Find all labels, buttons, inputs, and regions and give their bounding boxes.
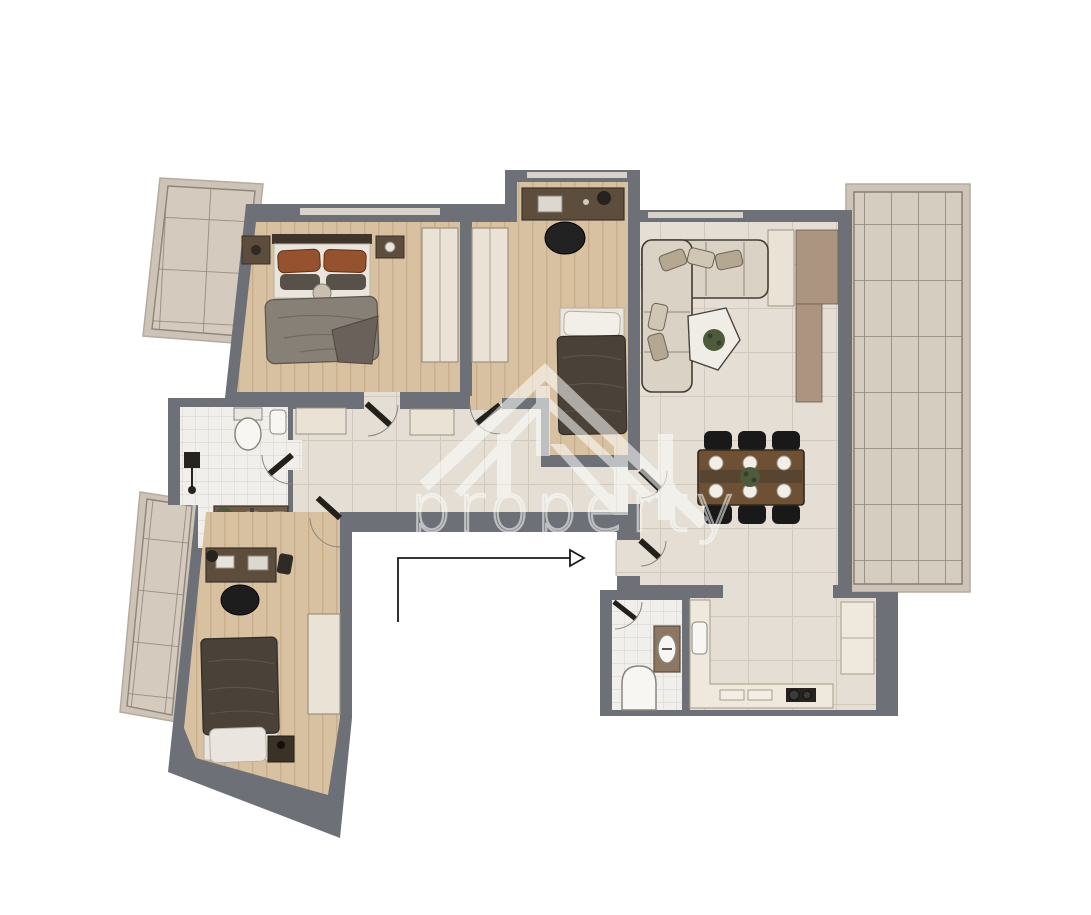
toilet: [622, 666, 656, 710]
dining-chair: [772, 504, 800, 524]
dining-chair: [738, 431, 766, 451]
office-chair: [221, 585, 259, 615]
wardrobe: [308, 614, 340, 714]
floor-plan-stage: property: [0, 0, 1091, 915]
terrace-tiles: [854, 192, 962, 584]
kitchen: [690, 585, 876, 710]
kitchen-sink: [692, 622, 707, 654]
desk-lamp: [206, 550, 218, 562]
media-wall-lower: [796, 304, 822, 402]
arrow-head: [570, 550, 584, 566]
sideboard: [296, 408, 346, 434]
double-bed: [265, 234, 379, 364]
sideboard: [410, 409, 454, 435]
dining-chair: [704, 431, 732, 451]
bathroom-2: [612, 600, 682, 710]
toilet: [234, 408, 262, 450]
cutting-board: [720, 690, 744, 700]
entrance-arrow: [398, 550, 584, 622]
pillow-gray-right: [326, 274, 366, 290]
desk: [206, 548, 276, 582]
room-bedroom-3: [184, 512, 340, 795]
desk-lamp: [597, 191, 611, 205]
dining-chair: [738, 504, 766, 524]
papers: [216, 556, 234, 568]
watermark-text: property: [410, 470, 741, 547]
laptop: [538, 196, 562, 212]
blanket: [201, 637, 279, 735]
room-master-bedroom: [237, 208, 460, 392]
pillow: [564, 311, 621, 337]
window-strip: [527, 172, 627, 178]
sink-console: [654, 626, 680, 672]
dining-chair: [772, 431, 800, 451]
centerpiece-plant: [740, 467, 760, 487]
pillow-gray-left: [280, 274, 320, 290]
cooktop: [786, 688, 816, 702]
single-bed: [201, 637, 279, 763]
pillow-rust-left: [277, 249, 320, 273]
desk: [522, 188, 624, 220]
media-wall-upper: [796, 230, 838, 304]
wall-sink: [270, 410, 286, 434]
office-chair: [545, 222, 585, 254]
headboard: [272, 234, 372, 244]
closet: [768, 230, 794, 306]
window-strip: [300, 208, 440, 215]
plant: [703, 329, 725, 351]
cutting-board: [748, 690, 772, 700]
floor-plan-svg: property: [0, 0, 1091, 915]
window-strip: [648, 212, 743, 218]
pillow-rust-right: [324, 249, 367, 272]
laptop: [248, 556, 268, 570]
sheet: [209, 727, 266, 763]
terrace-right: [846, 184, 970, 592]
